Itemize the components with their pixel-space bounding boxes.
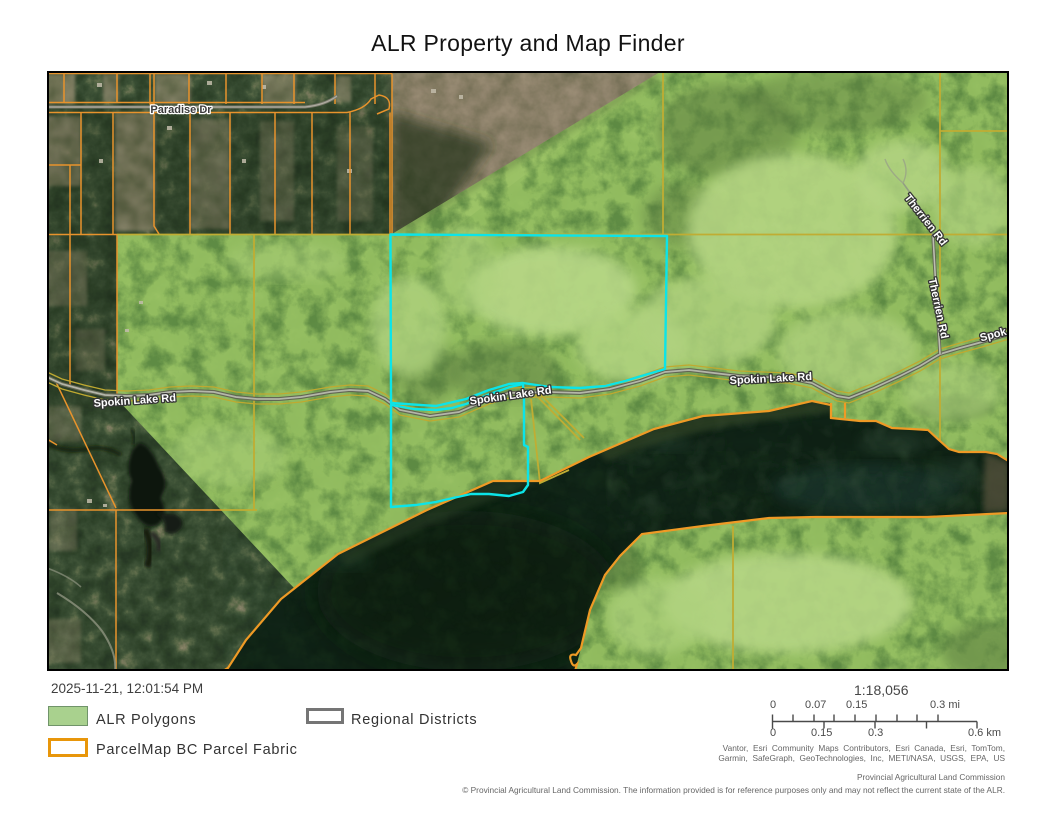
svg-text:Paradise Dr: Paradise Dr (150, 104, 212, 116)
